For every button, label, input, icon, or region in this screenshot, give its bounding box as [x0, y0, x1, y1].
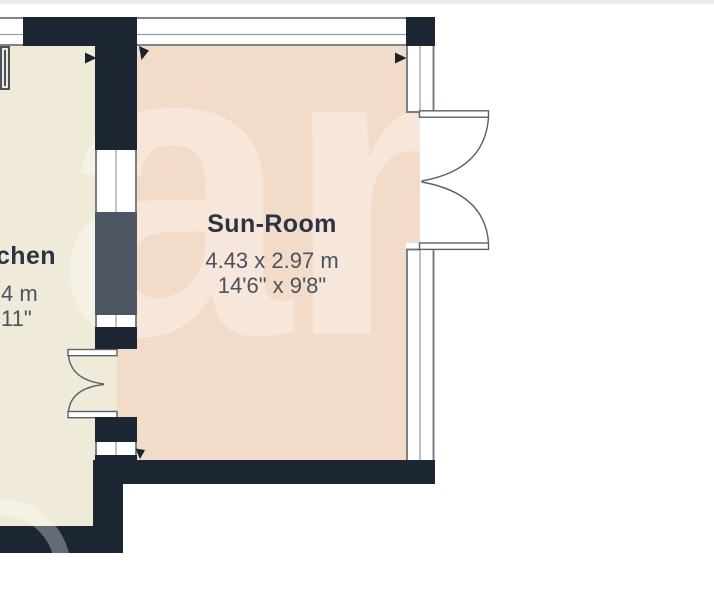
- door-swing-arc: [422, 117, 489, 181]
- sunroom-size-metric: 4.43 x 2.97 m: [137, 248, 407, 274]
- door-swing-arc: [69, 385, 105, 412]
- door-leaf-top: [420, 111, 489, 117]
- wall-top-right-corner: [406, 17, 435, 46]
- sunroom-size-imperial: 14'6" x 9'8": [137, 273, 407, 299]
- kitchen-window-fixture-inner: [4, 50, 6, 86]
- direction-arrow-icon: [395, 53, 407, 64]
- wall-bottom-sunroom: [93, 460, 435, 484]
- sunroom-label: Sun-Room 4.43 x 2.97 m 14'6" x 9'8": [137, 211, 407, 299]
- wall-left-mid: [95, 327, 137, 349]
- door-leaf-bottom: [420, 243, 489, 249]
- kitchen-label: chen 4 m 11": [0, 243, 76, 332]
- door-swing-arc: [69, 356, 105, 384]
- kitchen-window-fixture: [0, 46, 10, 90]
- door-leaf-top: [68, 350, 117, 356]
- wall-left-upper: [95, 46, 137, 150]
- direction-arrow-icon: [139, 46, 149, 60]
- sunroom-name: Sun-Room: [137, 211, 407, 239]
- wall-left-grey-segment: [95, 212, 137, 315]
- kitchen-size-metric-partial: 4 m: [1, 281, 76, 307]
- door-swing-arc: [422, 182, 489, 243]
- wall-top-left: [23, 17, 137, 46]
- wall-step-left: [93, 462, 123, 526]
- wall-left-lower: [95, 417, 137, 442]
- kitchen-size-imperial-partial: 11": [1, 306, 76, 332]
- french-door-right: [420, 111, 489, 250]
- french-door-left: [68, 350, 117, 418]
- kitchen-name-partial: chen: [0, 243, 76, 271]
- floor-plan: am: [0, 0, 714, 600]
